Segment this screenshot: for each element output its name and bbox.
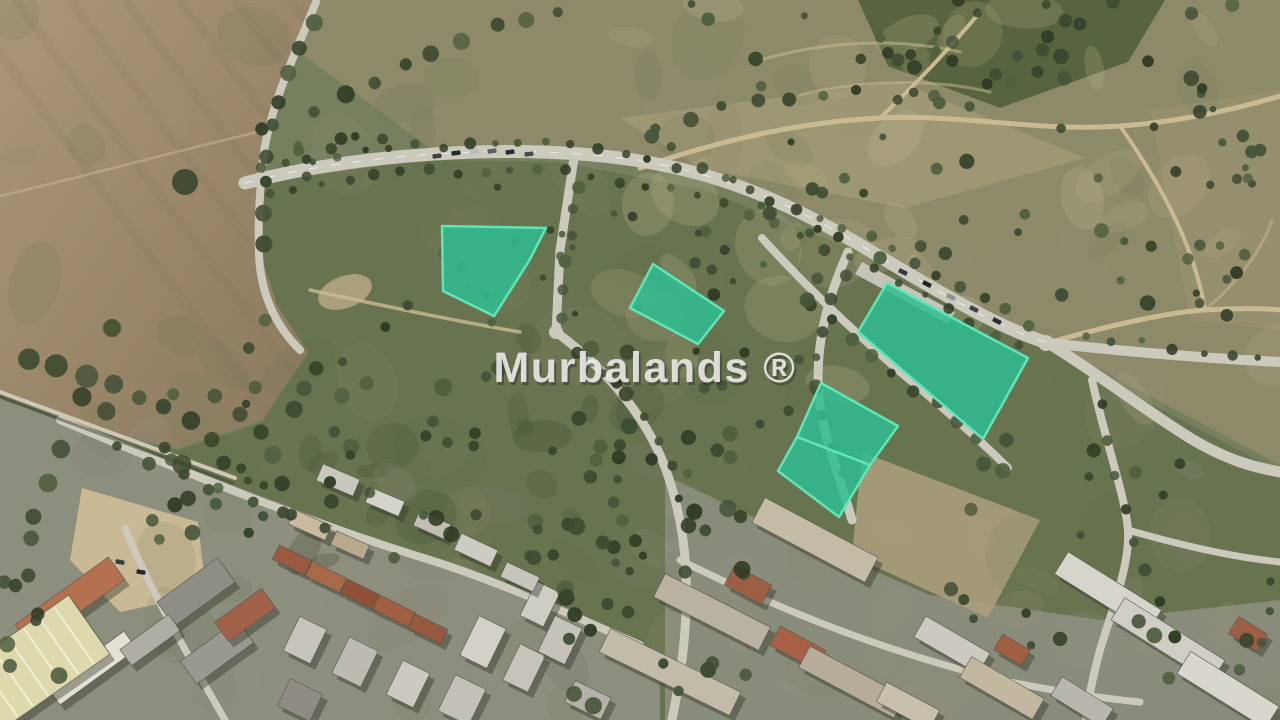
- field-tree-clump: [172, 169, 198, 195]
- watermark-text: Murbalands ®: [494, 344, 797, 392]
- watermark: Murbalands ® Murbalands ®: [494, 344, 799, 395]
- junction-pad: [549, 325, 563, 339]
- junction-pad: [1038, 335, 1054, 351]
- map-canvas: Murbalands ® Murbalands ®: [0, 0, 1280, 720]
- field-tree-clump: [103, 319, 121, 337]
- satellite-map-image: Murbalands ® Murbalands ®: [0, 0, 1280, 720]
